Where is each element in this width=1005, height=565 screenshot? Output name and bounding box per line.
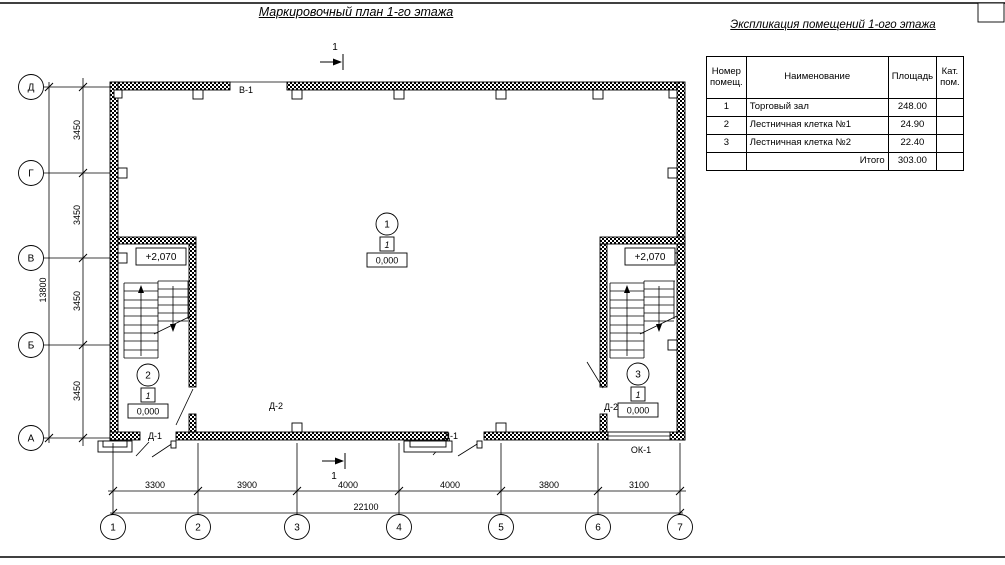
gate-label: В-1: [239, 85, 253, 95]
door-d1-label: Д-1: [148, 431, 162, 441]
explication-table: Номер помещ. Наименование Площадь Кат. п…: [706, 56, 964, 171]
axis-row-label: В: [28, 254, 35, 265]
cell-area: 22.40: [888, 135, 936, 153]
dim-label: 3450: [72, 381, 82, 401]
entrances: [98, 441, 482, 457]
cell-area: 248.00: [888, 99, 936, 117]
window-ok1: [608, 432, 670, 440]
floor-type-mark: 1: [635, 390, 640, 400]
table-row: 1 Торговый зал 248.00: [707, 99, 964, 117]
room-number: 2: [145, 371, 151, 382]
stair-arrow-down-icon: [170, 324, 176, 332]
stair-arrow-up-icon: [624, 285, 630, 293]
floor-type-mark: 1: [384, 240, 389, 250]
section-arrow-icon: [333, 59, 342, 66]
floor-type-mark: 1: [145, 391, 150, 401]
cell-cat: [937, 153, 964, 171]
col-header-area: Площадь: [888, 57, 936, 99]
window-ok1-label: ОК-1: [631, 445, 651, 455]
section-mark-bottom: 1: [322, 453, 345, 482]
frame-corner-box: [978, 3, 1004, 22]
level-ground: 0,000: [627, 406, 650, 416]
axis-col-label: 2: [195, 523, 201, 534]
cell-num: [707, 153, 747, 171]
cell-name: Лестничная клетка №2: [746, 135, 888, 153]
level-upper-left: +2,070: [146, 252, 177, 263]
section-mark-top: 1: [320, 42, 343, 70]
cell-name: Итого: [746, 153, 888, 171]
dim-label: 3800: [539, 480, 559, 490]
room-marker-2: 2 1 0,000: [128, 364, 168, 418]
opening-labels: В-1 Д-1 Д-1 Д-2 Д-2 ОК-1: [148, 85, 651, 455]
axis-row-label: А: [28, 434, 35, 445]
stair-flight-down: [158, 281, 189, 321]
room-number: 3: [635, 370, 641, 381]
table-total-row: Итого 303.00: [707, 153, 964, 171]
page-title: Маркировочный план 1-го этажа: [200, 5, 512, 19]
axis-col-label: 7: [677, 523, 683, 534]
dim-label: 3900: [237, 480, 257, 490]
dim-label: 3450: [72, 205, 82, 225]
axis-row-label: Б: [28, 341, 35, 352]
dim-total-label: 22100: [353, 502, 378, 512]
axis-grid-left: Д Г В Б А: [19, 75, 111, 451]
stair-arrow-up-icon: [138, 285, 144, 293]
section-arrow-icon: [335, 458, 344, 465]
col-header-cat: Кат. пом.: [937, 57, 964, 99]
cell-cat: [937, 135, 964, 153]
room-number: 1: [384, 220, 390, 231]
axis-row-label: Д: [28, 83, 35, 94]
col-header-name: Наименование: [746, 57, 888, 99]
dim-label: 3450: [72, 120, 82, 140]
cell-name: Лестничная клетка №1: [746, 117, 888, 135]
cell-name: Торговый зал: [746, 99, 888, 117]
door-d2-label: Д-2: [604, 402, 618, 412]
axis-row-label: Г: [28, 169, 34, 180]
dim-label: 3100: [629, 480, 649, 490]
door-d2-label: Д-2: [269, 401, 283, 411]
dimensions-left: 3450 3450 3450 3450 13800: [38, 78, 87, 446]
dim-label: 4000: [338, 480, 358, 490]
dimensions-bottom: 3300 3900 4000 4000 3800 3100 22100: [108, 443, 686, 517]
axis-col-label: 4: [396, 523, 402, 534]
axis-col-label: 6: [595, 523, 601, 534]
explication-title: Экспликация помещений 1-ого этажа: [700, 19, 966, 31]
dim-label: 4000: [440, 480, 460, 490]
room-marker-3: 3 1 0,000: [618, 363, 658, 417]
dim-label: 3300: [145, 480, 165, 490]
cell-cat: [937, 117, 964, 135]
cell-num: 1: [707, 99, 747, 117]
gate-opening: [222, 82, 287, 90]
cell-num: 3: [707, 135, 747, 153]
stair-arrow-down-icon: [656, 324, 662, 332]
axis-grid-bottom: 1 2 3 4 5 6 7: [101, 515, 693, 540]
table-row: 2 Лестничная клетка №1 24.90: [707, 117, 964, 135]
level-ground: 0,000: [376, 256, 399, 266]
drawing-sheet: В-1 Д-1 Д-1 Д-2 Д-2 ОК-1 +2,070 +2,070 1…: [0, 0, 1005, 565]
section-label: 1: [331, 471, 337, 482]
axis-col-label: 3: [294, 523, 300, 534]
section-label: 1: [332, 42, 338, 53]
stair-flight-down: [644, 281, 675, 321]
cell-num: 2: [707, 117, 747, 135]
cell-cat: [937, 99, 964, 117]
cell-area: 303.00: [888, 153, 936, 171]
dim-total-label: 13800: [38, 277, 48, 302]
table-header-row: Номер помещ. Наименование Площадь Кат. п…: [707, 57, 964, 99]
axis-col-label: 1: [110, 523, 116, 534]
axis-col-label: 5: [498, 523, 504, 534]
table-row: 3 Лестничная клетка №2 22.40: [707, 135, 964, 153]
level-ground: 0,000: [137, 407, 160, 417]
cell-area: 24.90: [888, 117, 936, 135]
room-marker-1: 1 1 0,000: [367, 213, 407, 267]
staircase-left: [118, 237, 196, 432]
dim-label: 3450: [72, 291, 82, 311]
col-header-num: Номер помещ.: [707, 57, 747, 99]
door-d1-label: Д-1: [444, 431, 458, 441]
level-upper-right: +2,070: [635, 252, 666, 263]
